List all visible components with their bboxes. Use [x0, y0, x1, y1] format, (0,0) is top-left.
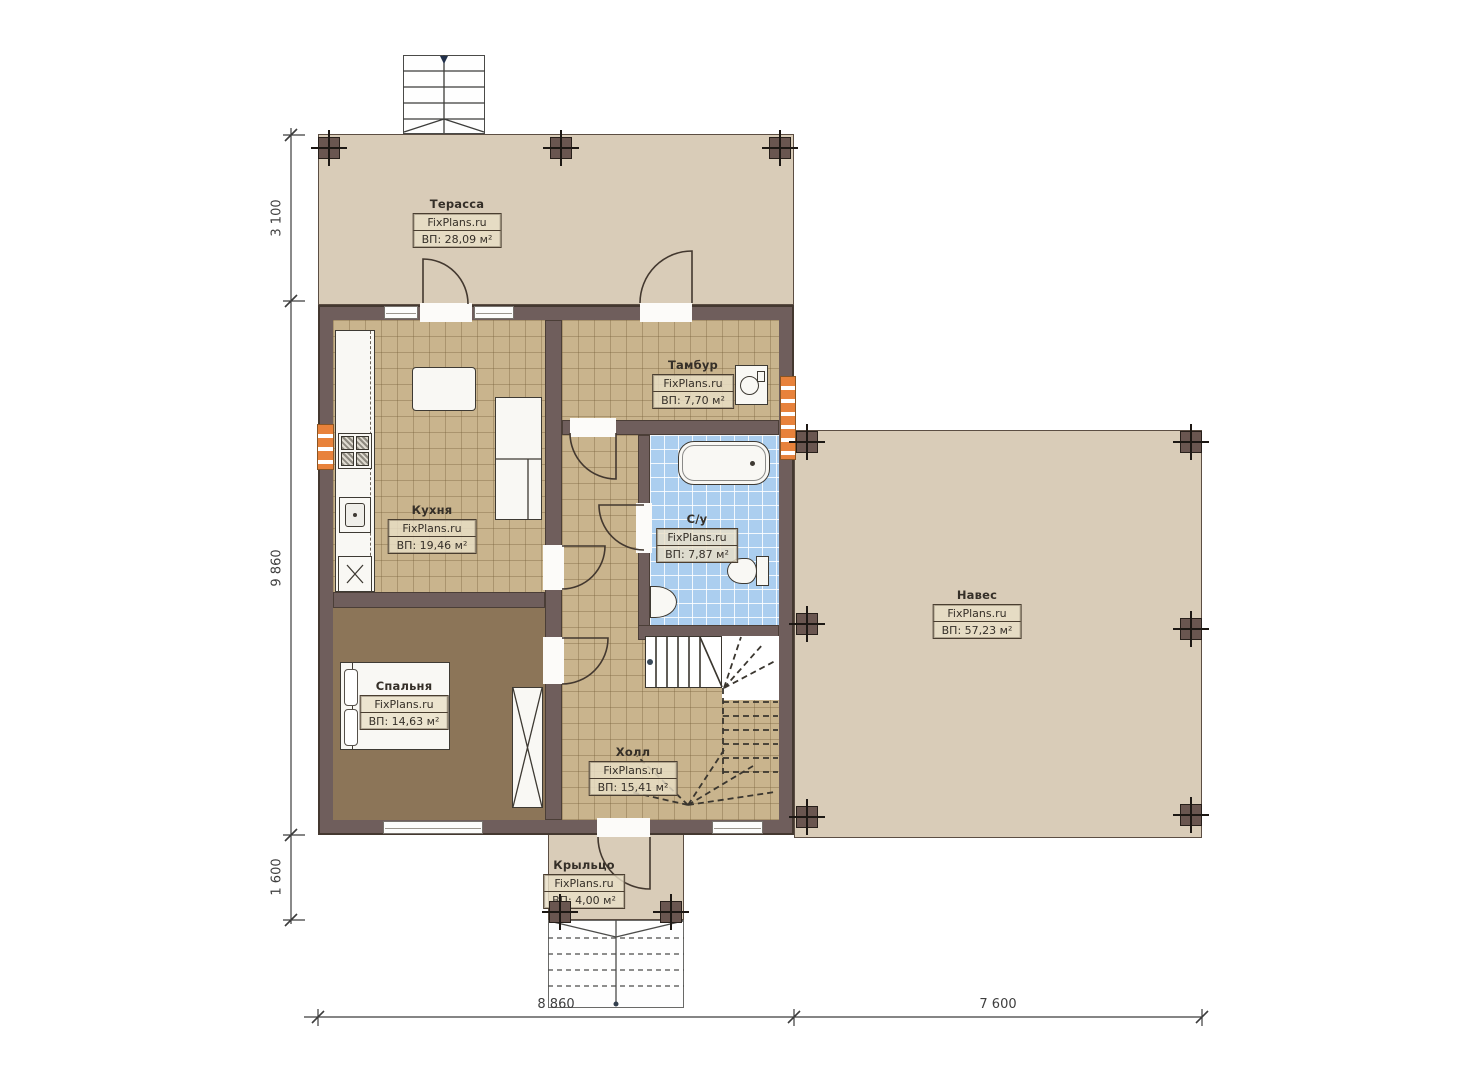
terrace-stairs-icon [403, 55, 485, 134]
room-info-box: FixPlans.ru ВП: 57,23 м² [933, 604, 1022, 639]
porch-stairs-icon [548, 920, 684, 1008]
window-terrace-right [474, 306, 514, 319]
dimension-left-bottom: 1 600 [270, 858, 285, 895]
stove-burner [341, 436, 354, 450]
wall-kitchen-bedroom [333, 592, 545, 608]
dimension-bottom-right: 7 600 [979, 997, 1016, 1012]
pillar [660, 901, 682, 923]
room-name: Холл [616, 745, 650, 759]
staircase-winder-area [722, 636, 779, 700]
pillar [1180, 618, 1202, 640]
room-area: ВП: 14,63 м² [361, 713, 448, 729]
pillar [550, 137, 572, 159]
stove-burner [356, 452, 369, 466]
pillar [1180, 804, 1202, 826]
window-hall [712, 821, 763, 834]
room-label-bedroom: Спальня FixPlans.ru ВП: 14,63 м² [360, 679, 449, 730]
stove-burner [341, 452, 354, 466]
room-name: Навес [957, 588, 997, 602]
door-tambour-terrace [640, 303, 692, 322]
room-label-terrace: Терасса FixPlans.ru ВП: 28,09 м² [413, 197, 502, 248]
pillar [796, 806, 818, 828]
room-info-box: FixPlans.ru ВП: 7,87 м² [656, 528, 738, 563]
radiator-tambour [780, 376, 796, 460]
room-info-box: FixPlans.ru ВП: 15,41 м² [589, 761, 678, 796]
room-info-box: FixPlans.ru ВП: 28,09 м² [413, 213, 502, 248]
room-area: ВП: 28,09 м² [414, 231, 501, 247]
room-area: ВП: 57,23 м² [934, 622, 1021, 638]
pillar [769, 137, 791, 159]
room-info-box: FixPlans.ru ВП: 19,46 м² [388, 519, 477, 554]
pillar [796, 431, 818, 453]
pillar [549, 901, 571, 923]
room-name: Терасса [430, 197, 484, 211]
room-name: Тамбур [668, 358, 718, 372]
toilet-tank [756, 556, 769, 586]
window-bedroom [383, 821, 483, 834]
pillow [344, 669, 358, 706]
dimension-bottom-left: 8 860 [537, 997, 574, 1012]
room-info-box: FixPlans.ru ВП: 7,70 м² [652, 374, 734, 409]
brand-watermark: FixPlans.ru [414, 214, 501, 231]
room-name: Кухня [412, 503, 453, 517]
door-bathroom [636, 503, 652, 553]
pillar [1180, 431, 1202, 453]
door-kitchen-hall [543, 545, 564, 590]
room-label-kitchen: Кухня FixPlans.ru ВП: 19,46 м² [388, 503, 477, 554]
brand-watermark: FixPlans.ru [389, 520, 476, 537]
door-kitchen-terrace [420, 303, 472, 322]
room-name: Крыльцо [553, 858, 615, 872]
room-area: ВП: 15,41 м² [590, 779, 677, 795]
room-info-box: FixPlans.ru ВП: 14,63 м² [360, 695, 449, 730]
staircase-lower-flight [645, 636, 722, 688]
dining-table [412, 367, 476, 411]
pillow [344, 709, 358, 746]
room-area: ВП: 19,46 м² [389, 537, 476, 553]
sideboard [495, 397, 542, 520]
room-label-tambour: Тамбур FixPlans.ru ВП: 7,70 м² [652, 358, 734, 409]
radiator-kitchen [317, 424, 334, 470]
room-label-hall: Холл FixPlans.ru ВП: 15,41 м² [589, 745, 678, 796]
room-name: Спальня [376, 679, 433, 693]
window-terrace-left [384, 306, 418, 319]
stove [338, 433, 372, 469]
room-area: ВП: 7,87 м² [657, 546, 737, 562]
washing-machine [735, 365, 768, 405]
brand-watermark: FixPlans.ru [934, 605, 1021, 622]
room-area: ВП: 7,70 м² [653, 392, 733, 408]
kitchen-sink [339, 497, 371, 533]
floor-plan-canvas: Терасса FixPlans.ru ВП: 28,09 м² Кухня F… [0, 0, 1473, 1080]
door-bedroom-hall [543, 637, 564, 684]
pillar [796, 613, 818, 635]
door-front-entrance [597, 818, 650, 837]
room-name: С/у [687, 512, 708, 526]
brand-watermark: FixPlans.ru [361, 696, 448, 713]
brand-watermark: FixPlans.ru [657, 529, 737, 546]
terrace-area [318, 134, 794, 305]
bathtub [678, 441, 770, 485]
wardrobe [512, 687, 543, 808]
kitchen-cabinet [338, 556, 372, 592]
dimension-left-top: 3 100 [270, 199, 285, 236]
stove-burner [356, 436, 369, 450]
door-tambour-hall [570, 418, 616, 437]
room-label-bathroom: С/у FixPlans.ru ВП: 7,87 м² [656, 512, 738, 563]
brand-watermark: FixPlans.ru [590, 762, 677, 779]
room-label-canopy: Навес FixPlans.ru ВП: 57,23 м² [933, 588, 1022, 639]
brand-watermark: FixPlans.ru [653, 375, 733, 392]
brand-watermark: FixPlans.ru [544, 875, 624, 892]
pillar [318, 137, 340, 159]
dimension-left-middle: 9 860 [270, 549, 285, 586]
